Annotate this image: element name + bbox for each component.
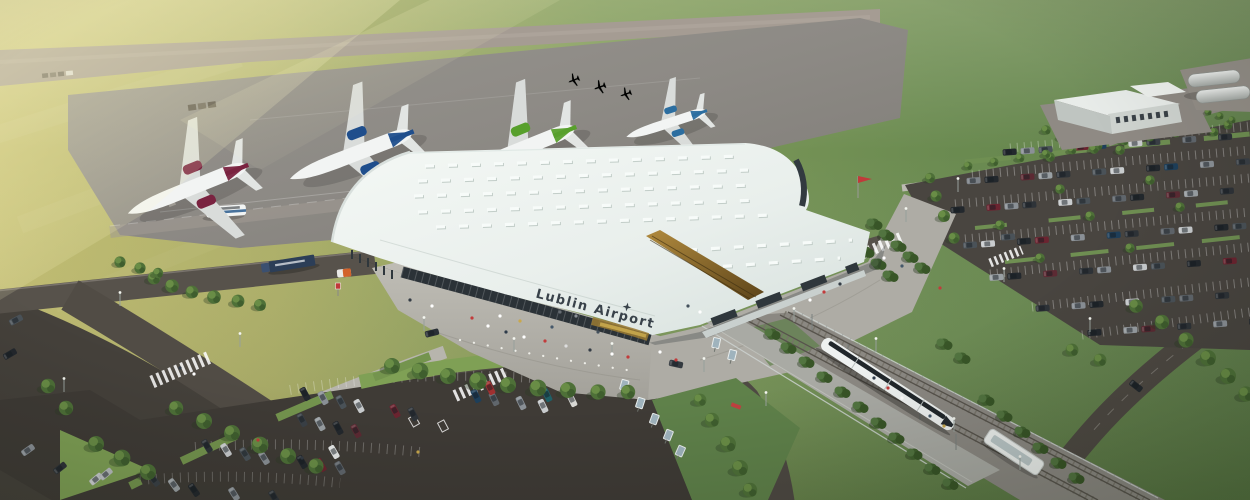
sun-glow xyxy=(0,0,1250,500)
airport-aerial-rendering: Lublin Airport xyxy=(0,0,1250,500)
